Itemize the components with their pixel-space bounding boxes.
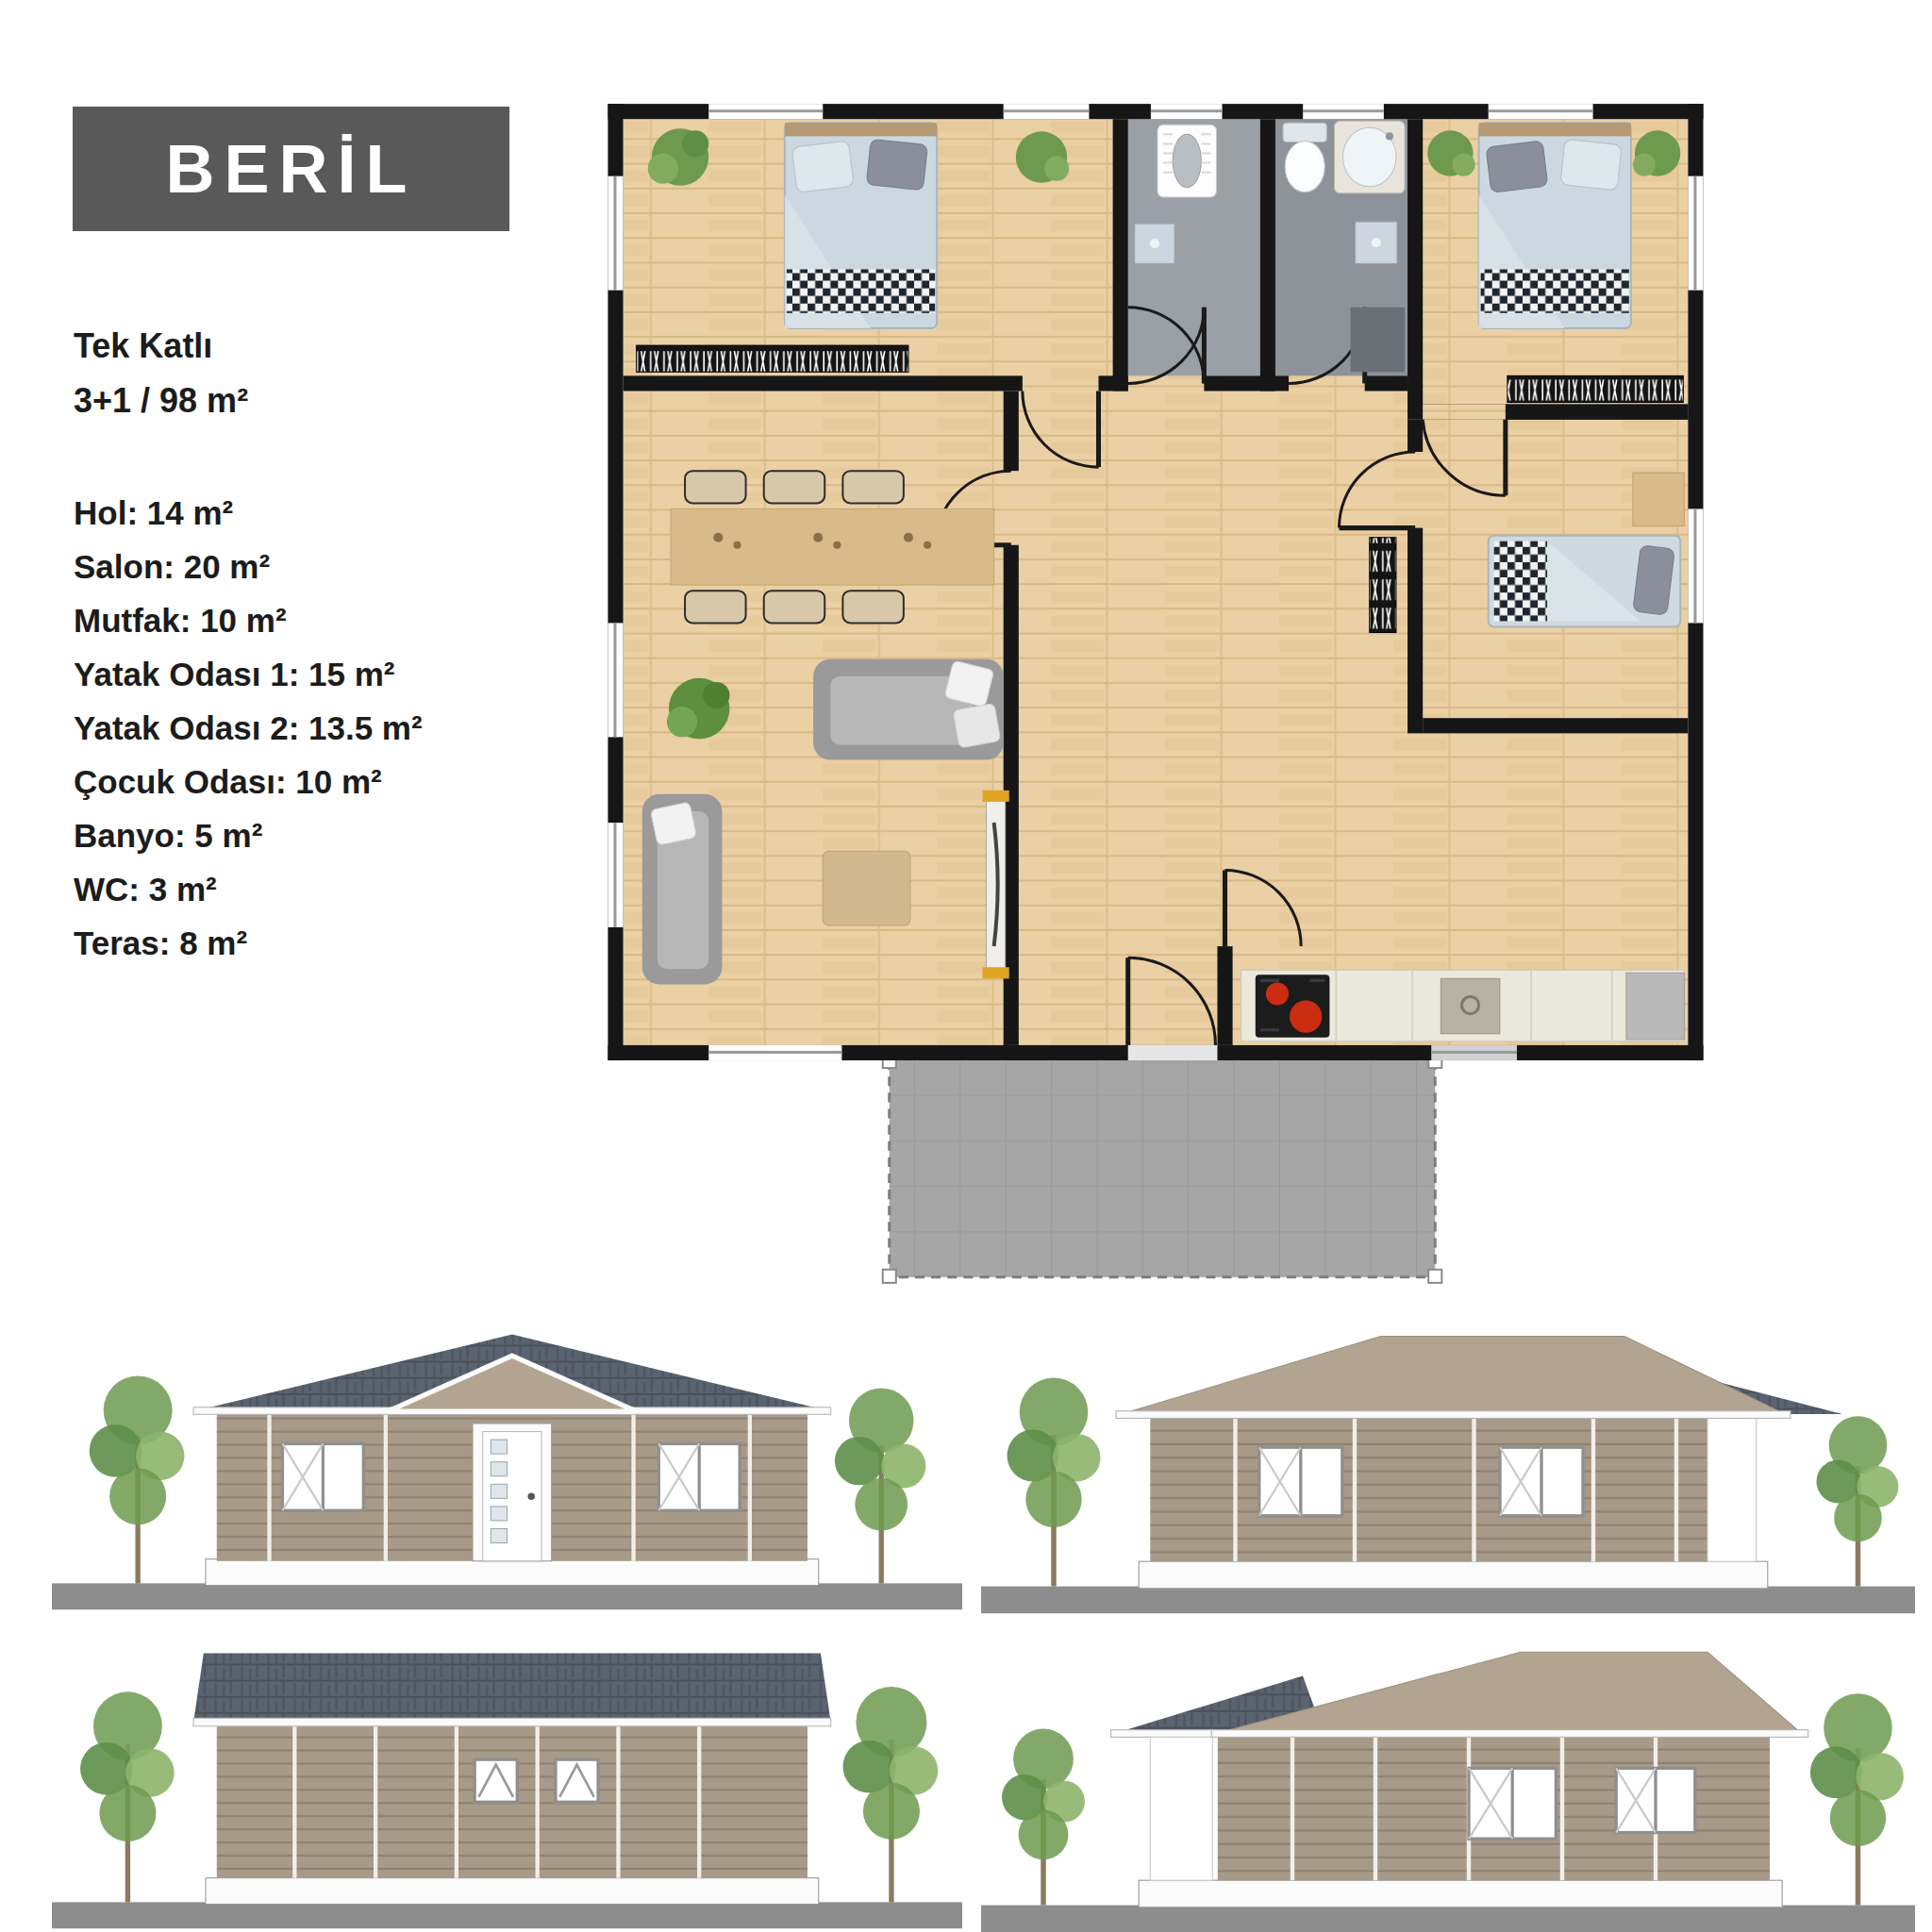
window-icon [1500,1447,1583,1516]
tree-icon [842,1687,938,1902]
sofa-icon [813,659,1004,760]
house-side [1111,1652,1808,1907]
tree-icon [1002,1729,1085,1906]
elevation-side-right-svg [981,1309,1915,1623]
spec-layout-area: 3+1 / 98 m² [74,374,248,428]
room-line-cocuk: Çocuk Odası: 10 m² [74,755,423,808]
window-icon [1616,1768,1695,1832]
elevation-side-left-svg [981,1628,1915,1932]
sofa-icon [642,794,723,985]
room-line-hol: Hol: 14 m² [74,486,423,540]
floor-plan-svg [594,91,1726,1298]
room-line-yatak1: Yatak Odası 1: 15 m² [74,647,423,701]
tv-unit-icon [983,791,1009,979]
kitchen-sink-icon [1441,978,1499,1033]
room-line-yatak2: Yatak Odası 2: 13.5 m² [74,701,423,755]
coffee-table-icon [823,851,910,925]
bedroom2-door-gap [1423,405,1506,420]
house-side [1116,1337,1842,1589]
tree-icon [1810,1693,1904,1905]
floor-plan [594,91,1726,1298]
single-bed-icon [1489,536,1681,627]
house-front [193,1335,831,1586]
shower-icon [1351,308,1405,373]
ground [52,1902,962,1928]
elevation-rear-svg [52,1628,962,1932]
roof-hip [1122,1337,1786,1415]
tree-icon [1008,1378,1101,1587]
tree-icon [90,1376,185,1584]
front-door-threshold [1128,1045,1218,1060]
radiator-icon [1370,538,1396,633]
porch-wall [1707,1414,1757,1561]
room-line-wc: WC: 3 m² [74,862,423,916]
porch-wall [1150,1737,1212,1880]
ground [52,1583,962,1609]
kitchen [1241,970,1685,1041]
window-icon [556,1759,598,1802]
elevation-side-left [981,1628,1915,1932]
double-bed-icon [1479,123,1631,328]
spec-block: Tek Katlı 3+1 / 98 m² [74,319,248,428]
window-icon [658,1443,740,1510]
toilet-icon [1283,123,1326,192]
elevation-front [52,1309,962,1623]
sink-icon [1135,224,1174,263]
elevation-side-right [981,1309,1915,1623]
sink-icon [1356,222,1397,263]
ground [981,1906,1915,1932]
room-line-teras: Teras: 8 m² [74,916,423,970]
bathtub-icon [1334,121,1405,193]
window-icon [282,1443,363,1510]
tree-icon [835,1388,926,1583]
siding-wall [1150,1414,1756,1561]
roof-slab [193,1654,831,1723]
window-icon [1259,1447,1342,1516]
double-bed-icon [785,123,937,328]
model-title: BERİL [166,130,417,208]
squat-toilet-icon [1158,125,1216,197]
radiator-icon [637,345,908,372]
plinth [206,1878,819,1905]
plinth [1139,1880,1782,1907]
elevation-rear [52,1628,962,1932]
model-title-box: BERİL [73,107,509,231]
elevation-front-svg [52,1309,962,1623]
room-line-mutfak: Mutfak: 10 m² [74,593,423,647]
window-icon [475,1759,517,1802]
house-rear [193,1654,831,1905]
room-line-salon: Salon: 20 m² [74,540,423,593]
plinth [1139,1561,1768,1589]
tree-icon [80,1691,175,1902]
catalog-sheet: BERİL Tek Katlı 3+1 / 98 m² Hol: 14 m² S… [0,0,1932,1932]
tree-icon [1817,1416,1899,1586]
window-icon [1469,1768,1556,1839]
ground [981,1587,1915,1614]
room-area-list: Hol: 14 m² Salon: 20 m² Mutfak: 10 m² Ya… [74,486,423,970]
plinth [206,1559,819,1586]
bedside-table [1633,473,1684,525]
fridge-icon [1626,973,1684,1040]
front-door-icon [473,1424,552,1561]
radiator-icon [1507,375,1683,402]
room-line-banyo: Banyo: 5 m² [74,808,423,862]
terrace [883,1055,1442,1283]
spec-storeys: Tek Katlı [74,319,248,374]
stove-icon [1256,974,1330,1038]
